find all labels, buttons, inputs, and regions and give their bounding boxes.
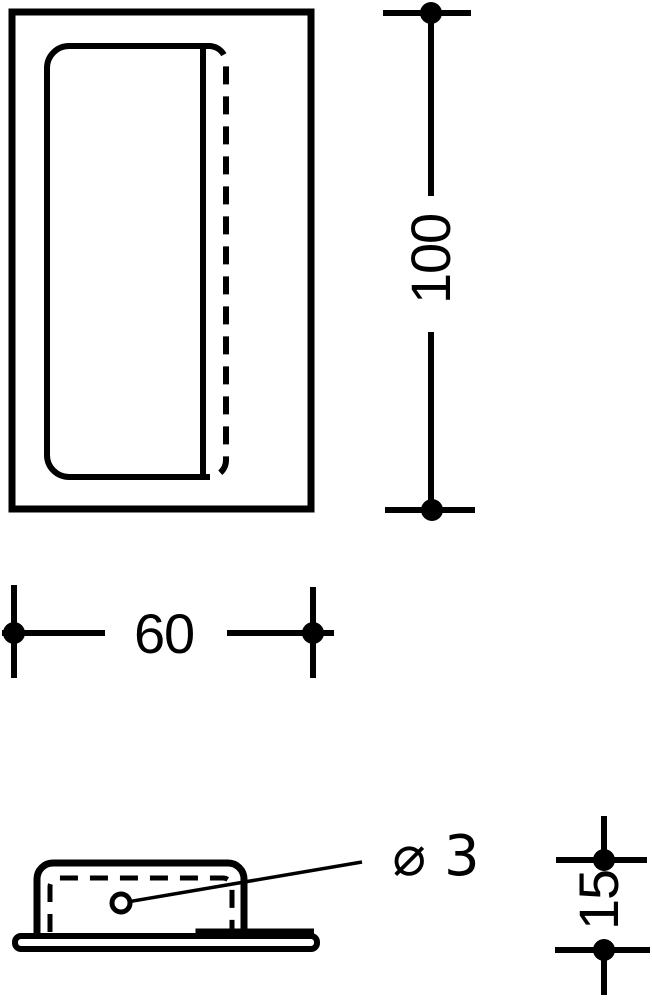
front-view [12, 12, 311, 509]
height-dimension-label: 100 [403, 214, 459, 304]
thickness-dim-bottom-dot [593, 939, 615, 961]
thickness-dimension-label: 15 [571, 870, 627, 930]
front-outer-frame [12, 12, 311, 509]
width-dim-left-dot [3, 622, 25, 644]
height-dim-top-dot [420, 2, 442, 24]
thickness-dim-top-dot [593, 849, 615, 871]
drawing-geometry [0, 0, 652, 1000]
width-dim-right-dot [302, 622, 324, 644]
recess-opening-outline [47, 46, 210, 477]
side-view [15, 862, 362, 949]
base-plate-outline [15, 936, 317, 949]
hole-circle [112, 894, 130, 912]
cup-hidden-dashed-outline [50, 878, 232, 936]
recess-hidden-dashed-outline [209, 46, 226, 477]
technical-drawing-canvas: 100 60 15 ⌀ 3 [0, 0, 652, 1000]
height-dim-bottom-dot [421, 499, 443, 521]
hole-diameter-label: ⌀ 3 [392, 829, 479, 885]
width-dimension-label: 60 [134, 606, 194, 662]
